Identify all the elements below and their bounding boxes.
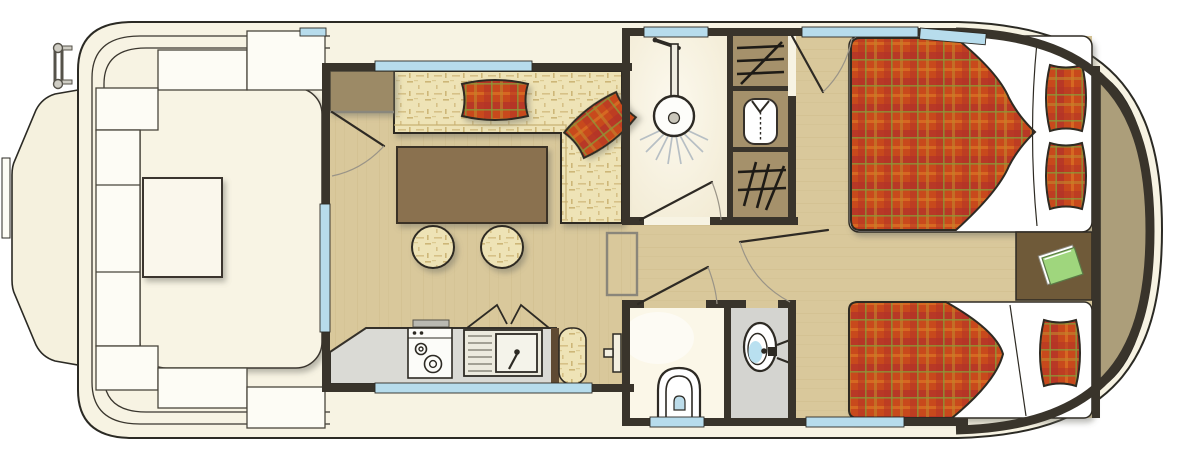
wall-mid-upper (622, 36, 630, 225)
sink-icon (464, 330, 542, 376)
bed-pillow-2 (1046, 143, 1086, 209)
wall-stub-4 (706, 300, 746, 308)
wall-wardrobe-shelf-1 (733, 86, 788, 91)
bed-pillow-3 (1040, 320, 1080, 386)
entry-cabinet (330, 71, 394, 112)
bed-pillow-1 (1046, 65, 1086, 131)
wall-stub-2 (710, 217, 727, 225)
boat-floor-plan (0, 0, 1200, 459)
window-front (300, 28, 326, 36)
window-cabin-top-1 (802, 27, 918, 37)
deck-bench-top-b (247, 31, 325, 90)
galley-seat-trim (551, 328, 559, 384)
galley-seat (559, 328, 586, 384)
bow-platform (12, 90, 78, 365)
deck-bench-bottom-a (158, 368, 247, 408)
window-cabin-bottom (806, 417, 904, 427)
window-salon-top (375, 61, 532, 71)
deck-bench-corner-tl (96, 88, 158, 130)
stove-shelf (413, 320, 449, 327)
wall-mid-lower (622, 300, 630, 418)
double-bed (849, 36, 1092, 232)
wall-wardrobe-shelf-2 (733, 147, 788, 152)
window-wc (650, 417, 704, 427)
salon-table (397, 147, 547, 223)
corridor-steps (607, 233, 637, 295)
wall-cabin-left-upper (788, 96, 796, 225)
deck-table (143, 178, 222, 277)
toilet-icon (658, 368, 700, 425)
window-galley (375, 383, 592, 393)
stove-icon (408, 328, 452, 378)
deck-bench-top-a (158, 50, 247, 90)
deck-bench-bottom-b (247, 387, 325, 428)
wc-light (622, 312, 694, 364)
hanging-wardrobe-icon (744, 99, 777, 144)
wall-wardrobe-divider (727, 36, 733, 217)
single-bed (849, 302, 1092, 418)
sofa-cushion-1 (462, 80, 528, 120)
boat-floor-plan-canvas (0, 0, 1200, 459)
wall-bedhead (1092, 66, 1100, 418)
wall-cabin-left-lower (788, 300, 796, 418)
wall-wardrobe-bottom (727, 217, 798, 225)
stool-1 (412, 226, 454, 268)
stool-2 (481, 226, 523, 268)
wardrobe-cell-bottom (733, 152, 788, 217)
bow-step (2, 158, 10, 238)
window-shower (644, 27, 708, 37)
window-salon-left (320, 204, 330, 332)
wall-stub-5 (778, 300, 796, 308)
wall-wc-divider (724, 308, 731, 418)
deck-bench-left (96, 130, 140, 346)
deck-bench-corner-bl (96, 346, 158, 390)
swim-ladder-icon (54, 44, 73, 89)
